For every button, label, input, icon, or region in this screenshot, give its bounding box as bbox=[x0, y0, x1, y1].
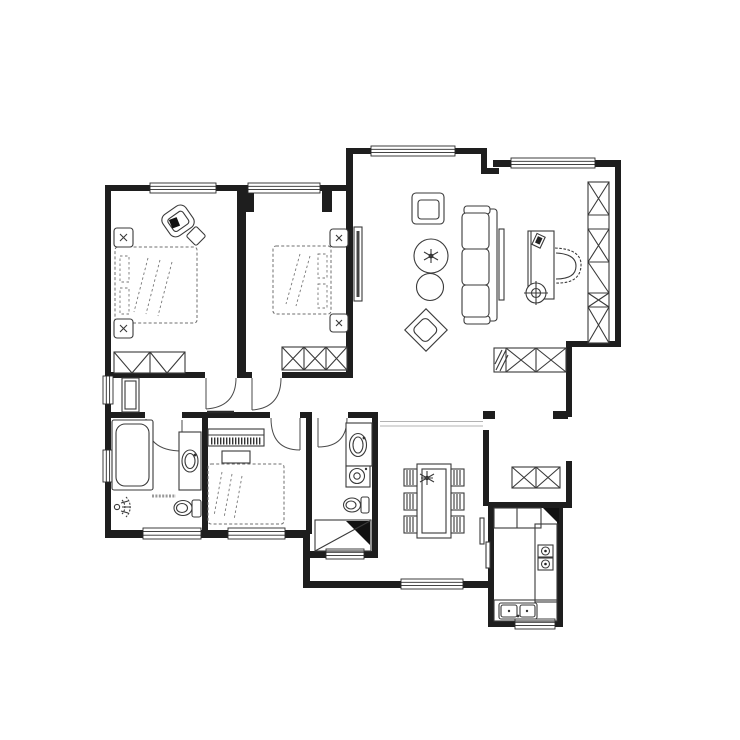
wall-bedroom2-bottom-stub bbox=[246, 372, 252, 378]
nightstand bbox=[330, 314, 348, 332]
wall-corridor-dining-divider bbox=[483, 430, 489, 506]
counter-top-run bbox=[494, 508, 559, 528]
window-bedroom2 bbox=[248, 183, 320, 193]
bathtub bbox=[112, 420, 153, 490]
dining-chair bbox=[404, 493, 417, 510]
wall-kitchen-top bbox=[488, 502, 563, 508]
bed-cover-ticks bbox=[134, 258, 172, 316]
room-study bbox=[494, 182, 609, 372]
bench bbox=[222, 451, 250, 463]
bookshelf-wall-unit bbox=[588, 182, 609, 343]
wall-living-left bbox=[346, 148, 353, 378]
door-bath2 bbox=[318, 418, 347, 447]
dining-chair bbox=[404, 516, 417, 533]
ceiling-beams bbox=[380, 422, 483, 427]
wall-bath2-right bbox=[372, 412, 378, 558]
diamond-ottoman bbox=[405, 309, 447, 351]
wall-bedroom1-bedroom2-divider bbox=[237, 185, 246, 378]
wall-left-outer bbox=[105, 185, 111, 538]
office-chair bbox=[555, 248, 581, 283]
door-bedroom3 bbox=[271, 418, 300, 450]
bed-bedroom3 bbox=[208, 464, 284, 524]
wall-entry-lower bbox=[566, 461, 572, 508]
nightstand bbox=[330, 229, 348, 247]
cooktop-2-burner bbox=[538, 545, 553, 570]
wall-right-outer bbox=[615, 160, 621, 347]
window-bedroom1 bbox=[150, 183, 216, 193]
counter-bottom-run bbox=[494, 600, 557, 621]
door-bedroom2 bbox=[252, 378, 281, 410]
wardrobe-bedroom2 bbox=[282, 347, 347, 370]
slatted-dresser bbox=[208, 429, 264, 446]
door-bedroom1 bbox=[206, 378, 236, 412]
floor-plan-canvas bbox=[0, 0, 740, 740]
room-dining bbox=[404, 464, 464, 538]
pillow bbox=[120, 256, 129, 282]
sofa-3-seat bbox=[462, 206, 504, 324]
console-behind-sofa bbox=[499, 229, 504, 300]
coffee-table-small bbox=[417, 274, 444, 301]
window-left-upper bbox=[103, 376, 113, 404]
wall-dining-left-outer bbox=[303, 532, 310, 588]
window-living-bay bbox=[371, 146, 455, 156]
window-bath1 bbox=[143, 528, 201, 539]
nightstand bbox=[114, 319, 133, 338]
toilet bbox=[174, 500, 201, 517]
bed-master bbox=[115, 247, 197, 323]
wall-bath1-top-right bbox=[182, 412, 208, 418]
dining-chairs-right bbox=[451, 469, 464, 533]
wardrobe-master bbox=[114, 352, 185, 373]
pilaster-bedroom2-left bbox=[246, 191, 254, 212]
coffee-table-large bbox=[414, 239, 448, 273]
dining-chair bbox=[451, 493, 464, 510]
vanity-sink-2 bbox=[346, 423, 372, 466]
bed-bedroom2 bbox=[273, 246, 331, 314]
wall-bedroom3-bath2-divider bbox=[306, 412, 312, 534]
wall-bedroom2-bottom bbox=[282, 372, 353, 378]
wall-bay-jog bbox=[481, 168, 499, 174]
armchair bbox=[412, 193, 444, 224]
window-study bbox=[511, 158, 595, 168]
window-dining bbox=[401, 579, 463, 589]
double-basin-sink bbox=[499, 603, 537, 619]
room-kitchen bbox=[494, 508, 559, 621]
window-bedroom3 bbox=[228, 528, 285, 539]
jamb-dining-left bbox=[483, 411, 495, 419]
jamb-entry-right bbox=[553, 411, 568, 419]
counter-right-run bbox=[535, 524, 557, 602]
room-bathroom-2 bbox=[315, 423, 372, 551]
shower-head-symbol bbox=[114, 497, 130, 517]
pilaster-bedroom2-right bbox=[322, 191, 332, 212]
corner-counter-fill bbox=[543, 508, 559, 524]
washing-machine bbox=[346, 466, 370, 487]
wall-bath1-top-left bbox=[105, 412, 145, 418]
bed-cover-ticks bbox=[214, 472, 242, 520]
room-master-bathroom bbox=[112, 420, 201, 517]
tv-panel bbox=[354, 227, 362, 301]
wall-entry-upper bbox=[566, 341, 572, 417]
room-bedroom-3 bbox=[208, 429, 284, 524]
floor-plan-drawing bbox=[0, 0, 740, 740]
wall-bedroom1-bottom-stub bbox=[238, 372, 246, 378]
tall-cabinet bbox=[122, 378, 139, 412]
sideboard-cabinet bbox=[494, 348, 566, 372]
pillow bbox=[318, 284, 327, 308]
dining-chair bbox=[404, 469, 417, 486]
shower-corner bbox=[315, 520, 371, 551]
bed-cover-ticks bbox=[286, 254, 310, 306]
dining-chair bbox=[451, 516, 464, 533]
dining-table bbox=[417, 464, 451, 538]
toilet-2 bbox=[344, 497, 370, 513]
room-master-bedroom bbox=[114, 202, 206, 412]
dining-chair bbox=[451, 469, 464, 486]
room-bedroom-2 bbox=[273, 229, 348, 370]
nightstand bbox=[114, 228, 133, 247]
wall-bath1-bedroom3-divider bbox=[202, 418, 208, 532]
room-living bbox=[354, 193, 504, 351]
dining-chairs-left bbox=[404, 469, 417, 533]
shoe-cabinet bbox=[512, 467, 560, 488]
pillow bbox=[120, 288, 129, 314]
vanity-sink bbox=[179, 432, 201, 490]
room-entry bbox=[512, 467, 560, 488]
pillow bbox=[318, 254, 327, 278]
